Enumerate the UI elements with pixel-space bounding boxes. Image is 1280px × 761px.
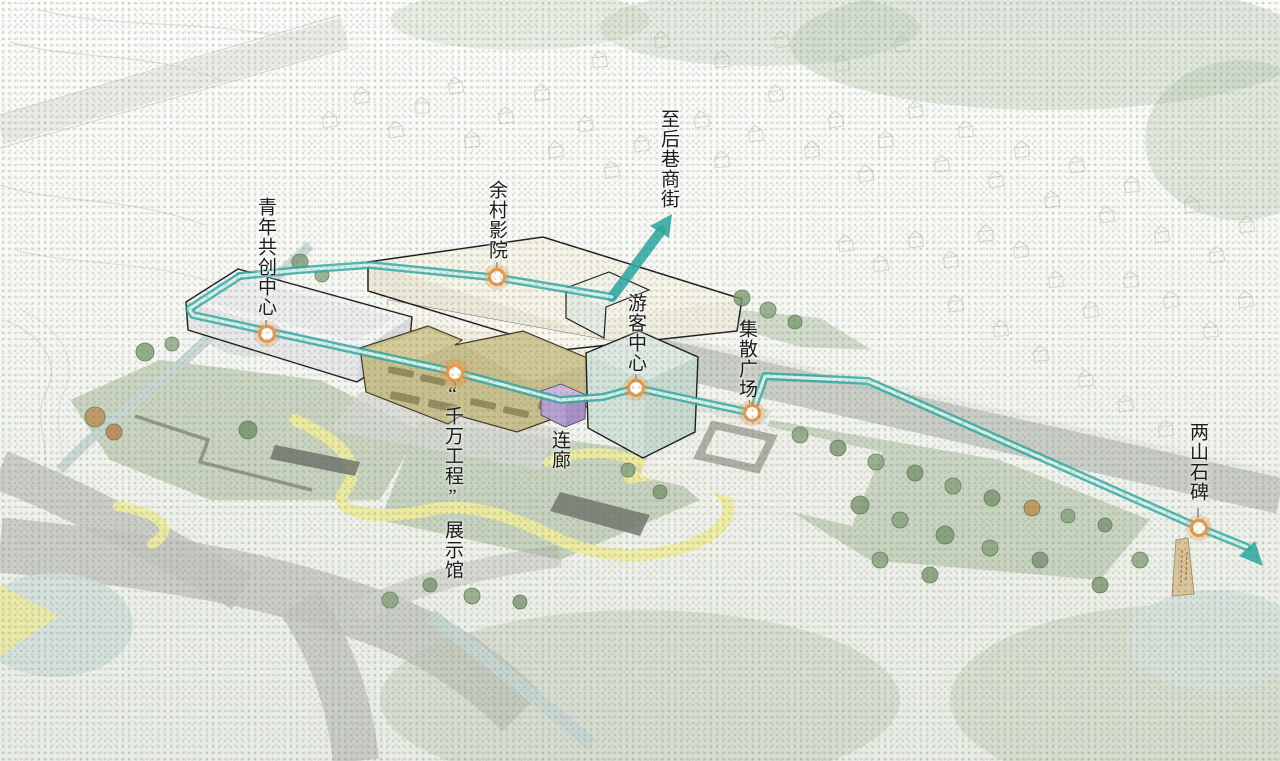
hill-green-wash: [390, 0, 1280, 220]
site-plan-canvas: [0, 0, 1280, 761]
site-plan: 青年共创中心 余村影院 至后巷商街 游客中心 集散广场 连廊 “千万工程” 展示…: [0, 0, 1280, 761]
marker-cinema: [486, 266, 508, 288]
marker-exhibition-hall: [443, 361, 467, 385]
label-to-back-street: 至后巷商街: [656, 109, 680, 209]
label-corridor: 连廊: [547, 430, 571, 470]
label-exhibition-hall-name: 展示馆: [440, 520, 464, 580]
label-youth-center: 青年共创中心: [253, 197, 277, 317]
label-plaza: 集散广场: [734, 319, 758, 399]
label-visitor-center: 游客中心: [623, 293, 647, 373]
marker-youth-center: [256, 323, 278, 345]
label-stone-monument: 两山石碑: [1185, 422, 1209, 502]
label-cinema: 余村影院: [484, 180, 508, 260]
marker-stone-monument: [1188, 517, 1210, 539]
label-exhibition-hall: “千万工程” 展示馆: [440, 384, 464, 580]
marker-plaza: [741, 402, 763, 424]
marker-visitor-center: [625, 377, 647, 399]
label-exhibition-hall-quote: “千万工程”: [440, 384, 464, 508]
stone-monument: [1172, 538, 1194, 596]
